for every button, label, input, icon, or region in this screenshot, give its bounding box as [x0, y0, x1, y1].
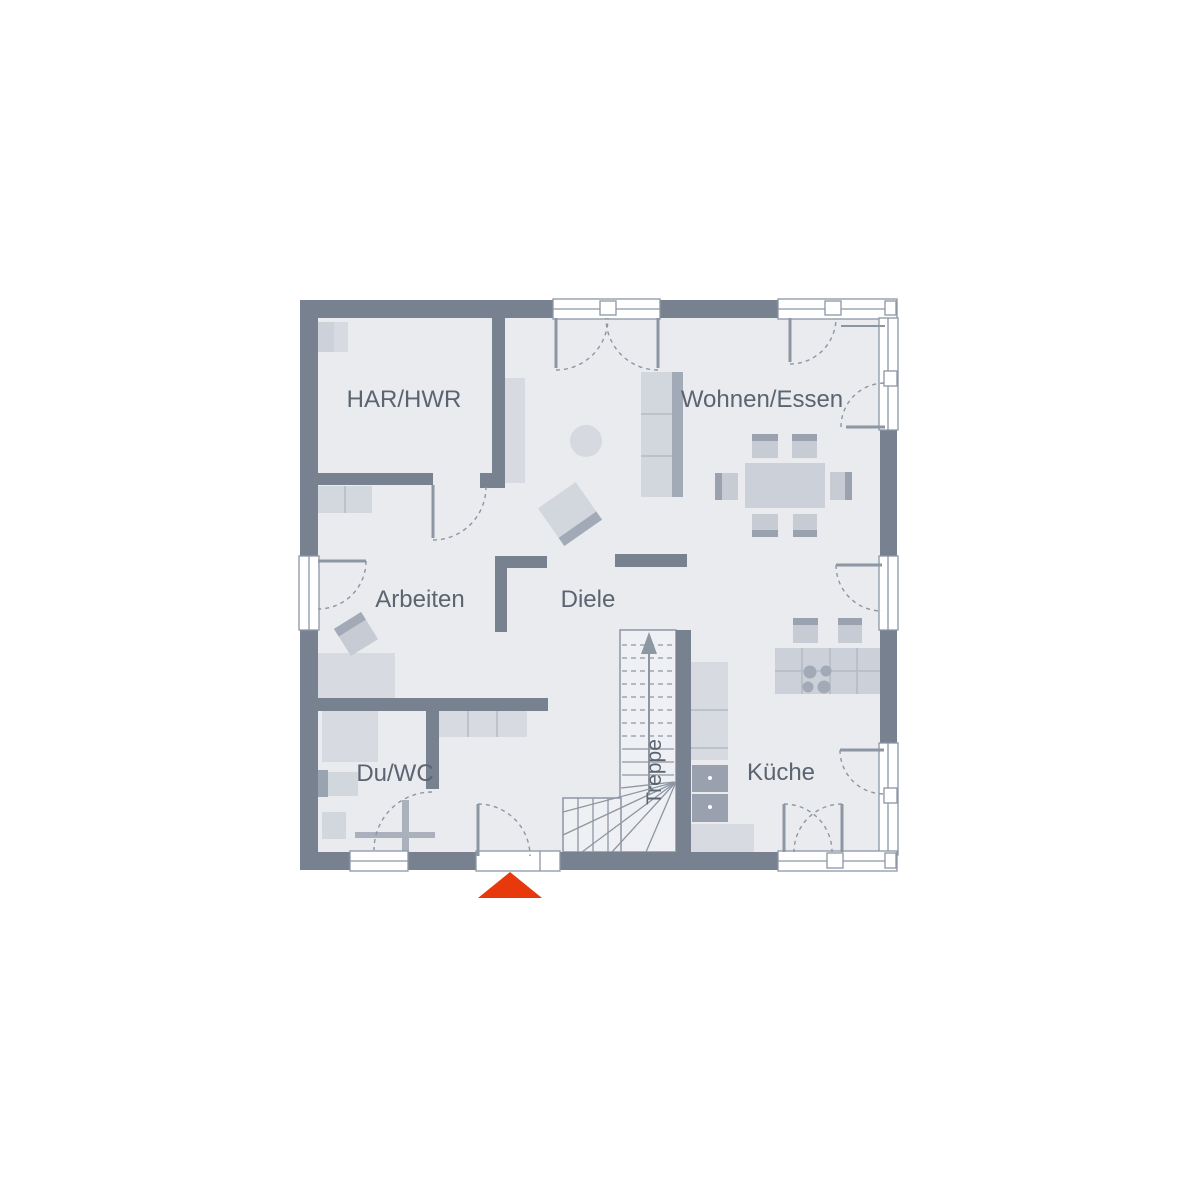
window-handle — [600, 301, 616, 315]
wall-duwc-pilaster — [318, 770, 328, 797]
floor-plan-page: HAR/HWR Wohnen/Essen Arbeiten Diele Du/W… — [0, 0, 1200, 1200]
window-handle — [884, 371, 897, 386]
window-handle — [825, 301, 841, 315]
wall-diele-right — [615, 554, 687, 567]
room-label-wohnen-essen: Wohnen/Essen — [681, 386, 843, 413]
wc — [322, 812, 346, 839]
entrance-door-panel — [476, 851, 560, 871]
wall-south-corridor — [318, 698, 548, 711]
room-label-treppe: Treppe — [643, 739, 666, 805]
room-label-du-wc: Du/WC — [356, 760, 433, 787]
window-handle — [885, 301, 896, 315]
window-handle — [827, 853, 843, 868]
furniture-sofa — [641, 372, 683, 497]
wall-harhwr-east — [492, 318, 505, 488]
sink — [328, 772, 358, 796]
room-label-diele: Diele — [561, 586, 616, 613]
furniture-har-hwr — [318, 322, 348, 352]
window-handle — [885, 853, 896, 868]
furniture-wardrobe — [439, 708, 527, 737]
room-label-kueche: Küche — [747, 759, 815, 786]
furniture-hall-cabinet — [318, 486, 372, 513]
floor-plan: HAR/HWR Wohnen/Essen Arbeiten Diele Du/W… — [0, 0, 1200, 1200]
room-label-arbeiten: Arbeiten — [375, 586, 464, 613]
window-handle — [884, 788, 897, 803]
wall-door-stub — [480, 473, 505, 488]
room-label-har-hwr: HAR/HWR — [347, 386, 462, 413]
entrance-marker-icon — [478, 872, 542, 898]
wall-stair-east — [676, 630, 691, 852]
shower — [322, 707, 378, 762]
wall-harhwr-south — [318, 473, 433, 485]
wall-diele-l-horiz — [495, 556, 547, 568]
